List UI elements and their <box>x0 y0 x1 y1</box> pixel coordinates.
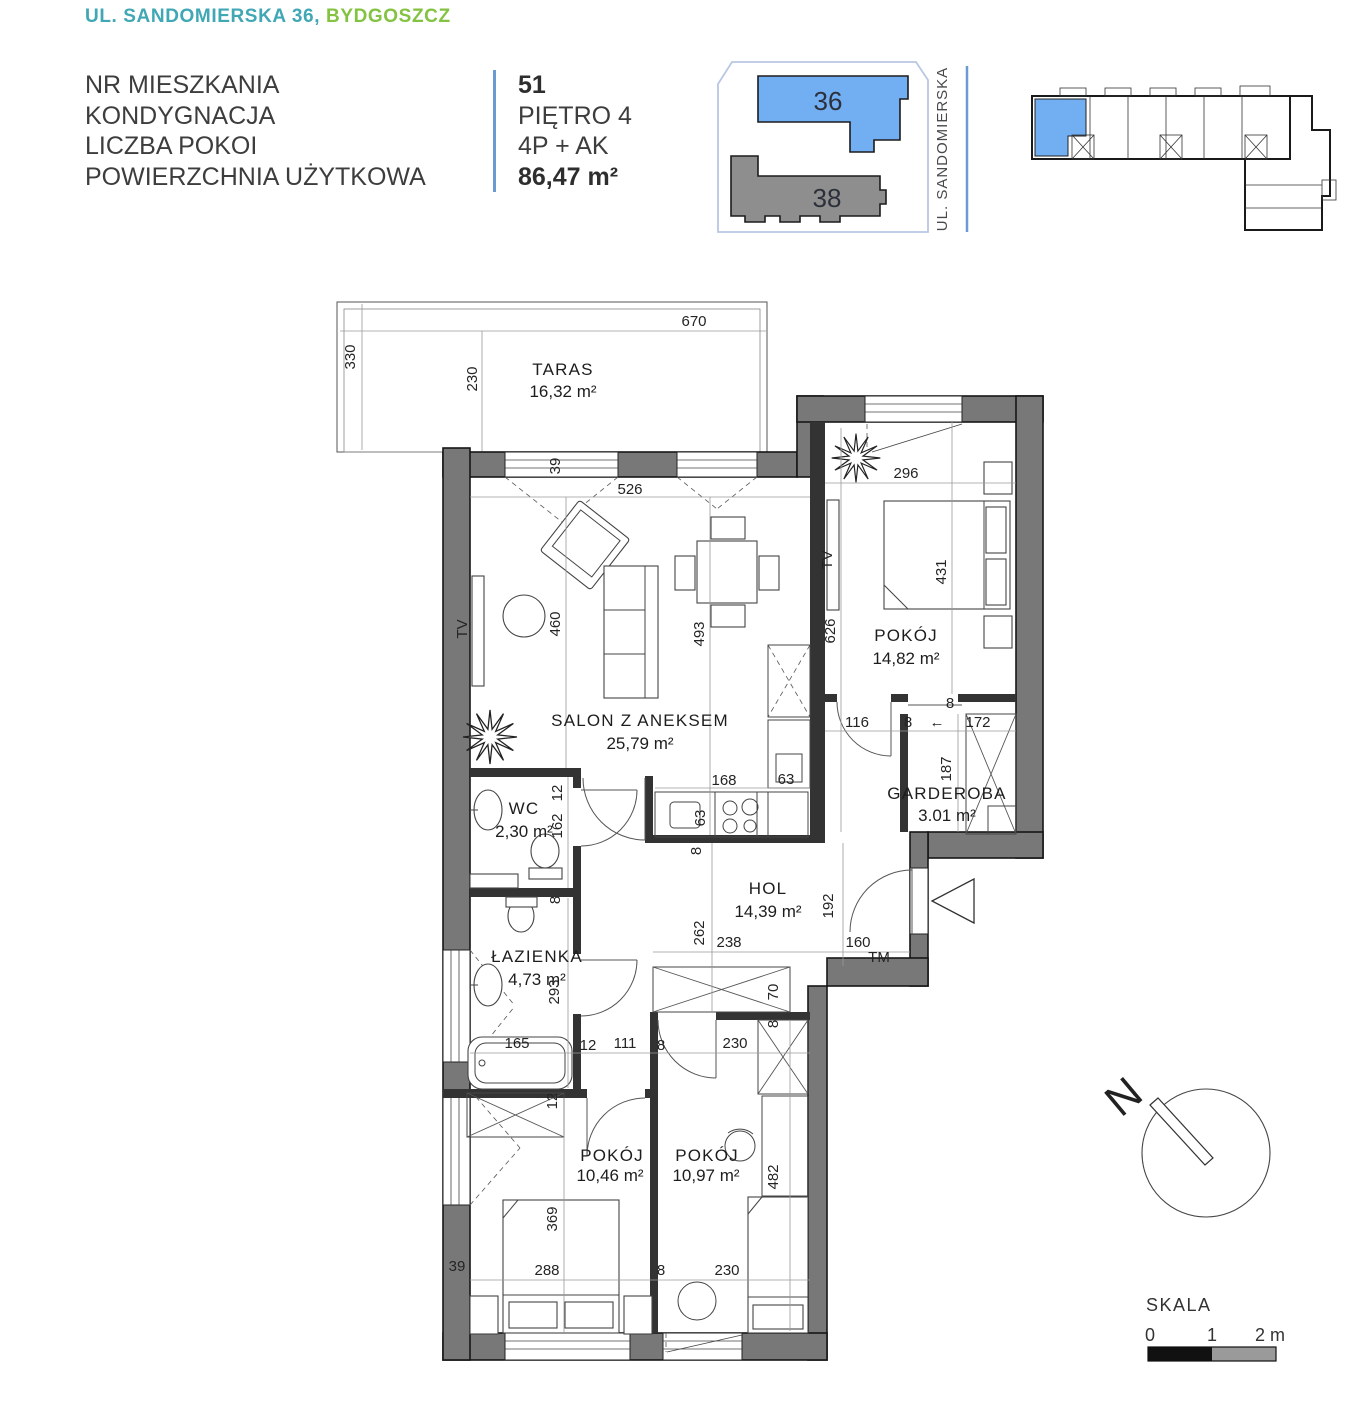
ceiling-light-icon <box>832 434 881 483</box>
nightstand <box>470 1296 498 1334</box>
room-label-garderoba: GARDEROBA <box>887 784 1006 803</box>
street-label: UL. SANDOMIERSKA <box>934 67 951 231</box>
ceiling-light-icon <box>463 710 517 764</box>
dim-label: 330 <box>342 344 359 369</box>
dim-label: 431 <box>933 559 950 584</box>
dim-label: 293 <box>546 979 563 1004</box>
dim-label: 482 <box>765 1164 782 1189</box>
dim-label: 168 <box>711 772 736 789</box>
double-bed-pokoj1 <box>884 501 1010 609</box>
dim-label: 8 <box>765 1020 782 1028</box>
room-label-pokoj3: POKÓJ <box>675 1146 739 1165</box>
site-building-38 <box>731 156 886 222</box>
pouf <box>678 1282 716 1320</box>
entrance-arrow-icon <box>932 879 974 923</box>
dim-label: 12 <box>580 1037 597 1054</box>
dim-label: 63 <box>692 810 709 827</box>
dim-label: 63 <box>778 771 795 788</box>
room-label-pokoj1: POKÓJ <box>874 626 938 645</box>
tv-cabinet-salon <box>472 576 484 686</box>
compass: N <box>1096 1068 1270 1217</box>
room-area-wc: 2,30 m² <box>495 822 553 841</box>
dim-label: 238 <box>716 934 741 951</box>
single-bed-pokoj3 <box>748 1197 808 1333</box>
room-area-taras: 16,32 m² <box>529 382 596 401</box>
wardrobe-pokoj3 <box>758 1020 808 1094</box>
nightstand <box>984 462 1012 494</box>
double-bed-pokoj2 <box>503 1200 619 1333</box>
dim-label: 187 <box>938 756 955 781</box>
dim-label: 111 <box>614 1035 637 1052</box>
dim-label: 8 <box>946 695 954 712</box>
doors <box>581 702 891 1156</box>
dim-label: 8 <box>688 847 705 855</box>
room-area-salon: 25,79 m² <box>606 734 673 753</box>
tm-label: TM <box>868 949 890 966</box>
stove <box>723 799 758 833</box>
scale-tick: 2 m <box>1255 1325 1285 1345</box>
dim-label: 162 <box>549 813 566 838</box>
north-label: N <box>1096 1068 1152 1126</box>
kitchen-tall-units <box>768 645 810 788</box>
dim-label: 39 <box>547 458 564 475</box>
dim-label: 192 <box>820 893 837 918</box>
side-table <box>503 595 545 637</box>
room-label-hol: HOL <box>749 879 788 898</box>
room-label-lazienka: ŁAZIENKA <box>491 947 583 966</box>
dim-label: 8 <box>657 1037 665 1054</box>
scale-tick: 0 <box>1145 1325 1155 1345</box>
dim-label: 230 <box>464 366 481 391</box>
dining-table <box>675 517 779 627</box>
room-area-pokoj1: 14,82 m² <box>872 649 939 668</box>
site-building-36-label: 36 <box>814 86 843 116</box>
dim-label: 116 <box>845 714 869 731</box>
laundry-shelf <box>470 874 518 888</box>
dim-label: 369 <box>544 1206 561 1231</box>
dim-label: 262 <box>691 920 708 945</box>
room-area-hol: 14,39 m² <box>734 902 801 921</box>
dim-label: 296 <box>893 465 918 482</box>
floor-overview <box>1032 86 1336 230</box>
tv-label: TV <box>819 550 836 569</box>
slide-arrow-icon: ← <box>930 714 945 731</box>
floorplan-page: UL. SANDOMIERSKA 36, BYDGOSZCZ NR MIESZK… <box>0 0 1363 1405</box>
dim-label: 165 <box>504 1035 529 1052</box>
scale-tick: 1 <box>1207 1325 1217 1345</box>
room-area-pokoj2: 10,46 m² <box>576 1166 643 1185</box>
dim-label: 8 <box>904 714 912 731</box>
room-area-pokoj3: 10,97 m² <box>672 1166 739 1185</box>
dim-label: 526 <box>617 481 642 498</box>
entrance-door <box>850 868 974 934</box>
nightstand <box>624 1296 652 1334</box>
room-label-salon: SALON Z ANEKSEM <box>551 711 729 730</box>
dim-label: 8 <box>657 1262 665 1279</box>
north-arrow-icon <box>1150 1098 1213 1165</box>
dim-label: 8 <box>547 896 564 904</box>
dim-label: 230 <box>722 1035 747 1052</box>
dim-label: 70 <box>765 984 782 1001</box>
floor-plan-canvas: 36 38 UL. SANDOMIERSKA <box>0 0 1363 1405</box>
scale-bar: SKALA 0 1 2 m <box>1145 1295 1285 1361</box>
room-area-garderoba: 3.01 m² <box>918 806 976 825</box>
dim-label: 172 <box>965 714 990 731</box>
kitchen-counter <box>655 792 808 837</box>
dim-label: 12 <box>549 785 566 802</box>
dim-label: 160 <box>845 934 870 951</box>
scale-title: SKALA <box>1146 1295 1212 1315</box>
site-building-38-label: 38 <box>813 183 842 213</box>
dim-label: 230 <box>714 1262 739 1279</box>
sofa <box>604 566 658 698</box>
dim-label: 626 <box>822 618 839 643</box>
dim-label: 460 <box>547 611 564 636</box>
dim-label: 288 <box>534 1262 559 1279</box>
site-plan: 36 38 UL. SANDOMIERSKA <box>718 62 967 232</box>
tv-label: TV <box>454 619 471 638</box>
room-label-taras: TARAS <box>532 360 593 379</box>
room-label-pokoj2: POKÓJ <box>580 1146 644 1165</box>
nightstand <box>984 616 1012 648</box>
dim-label: 670 <box>681 313 706 330</box>
dim-label: 12 <box>544 1093 561 1110</box>
room-label-wc: WC <box>509 799 540 818</box>
dim-label: 493 <box>691 621 708 646</box>
dim-label: 39 <box>449 1258 466 1275</box>
